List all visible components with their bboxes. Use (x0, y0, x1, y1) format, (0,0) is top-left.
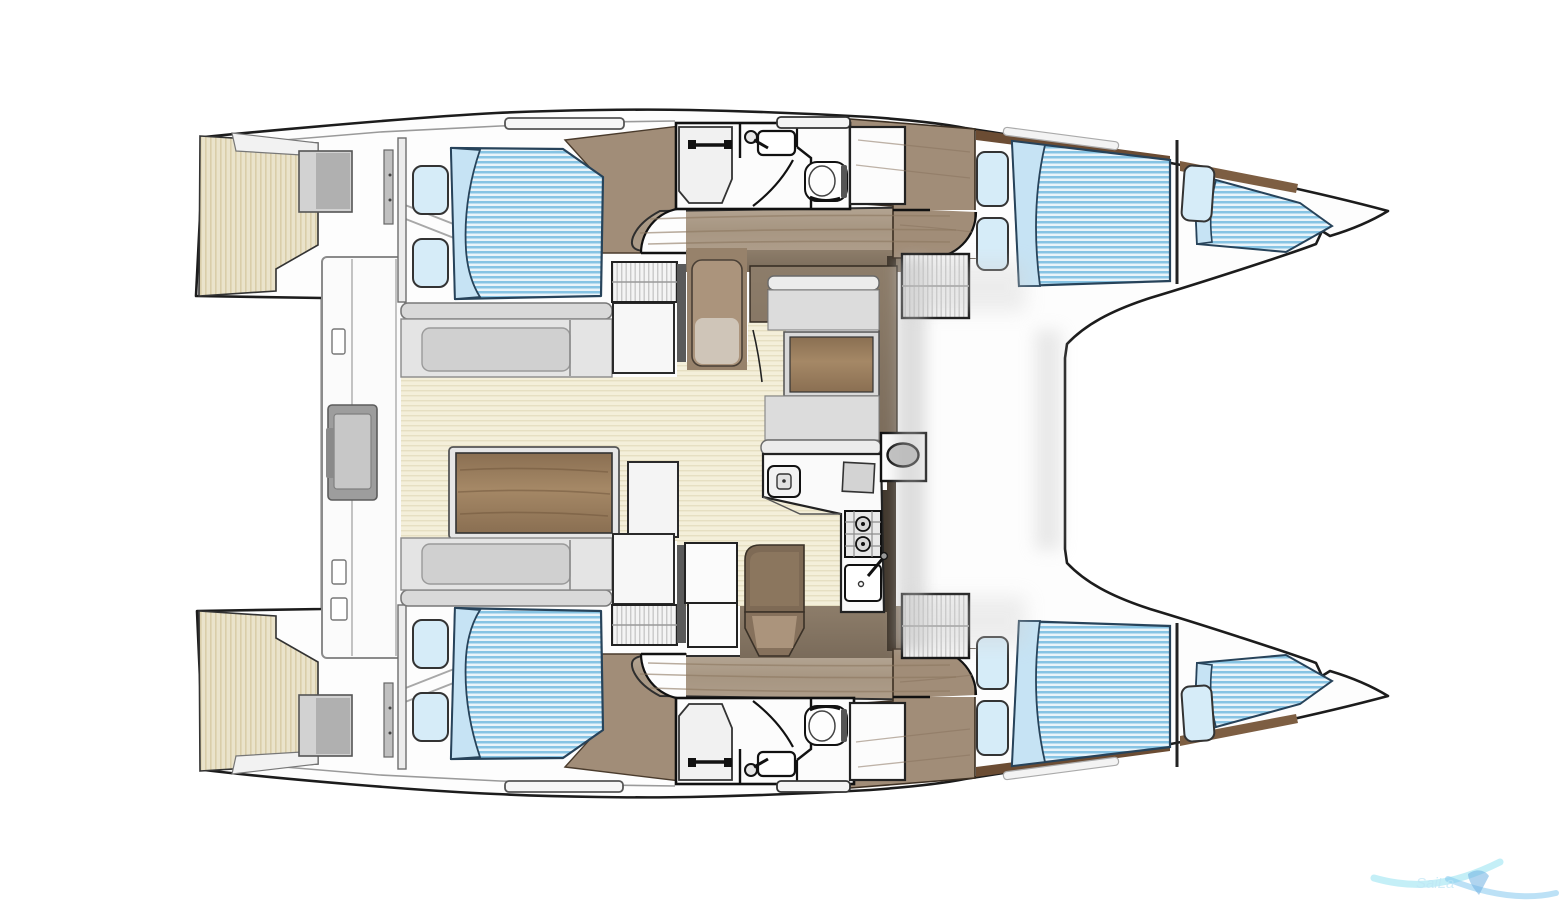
svg-text:SaiLa: SaiLa (1416, 875, 1454, 892)
